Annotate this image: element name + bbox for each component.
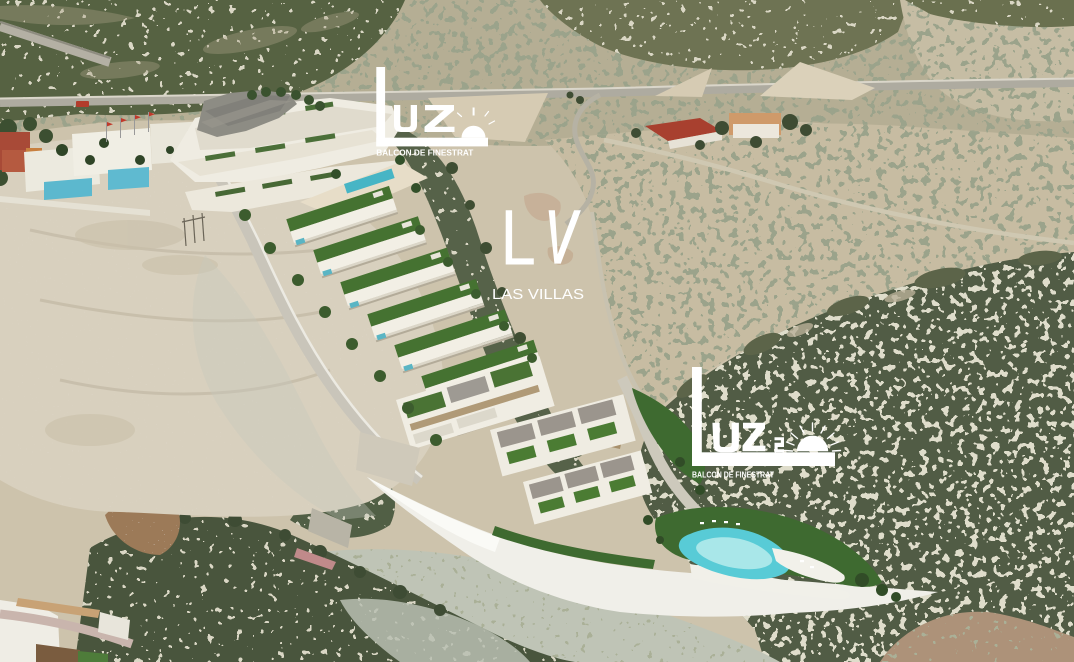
svg-text:LAS VILLAS: LAS VILLAS: [492, 287, 584, 303]
svg-text:BALCON DE FINESTRAT: BALCON DE FINESTRAT: [692, 470, 775, 480]
svg-text:BALCON DE FINESTRAT: BALCON DE FINESTRAT: [376, 148, 474, 158]
